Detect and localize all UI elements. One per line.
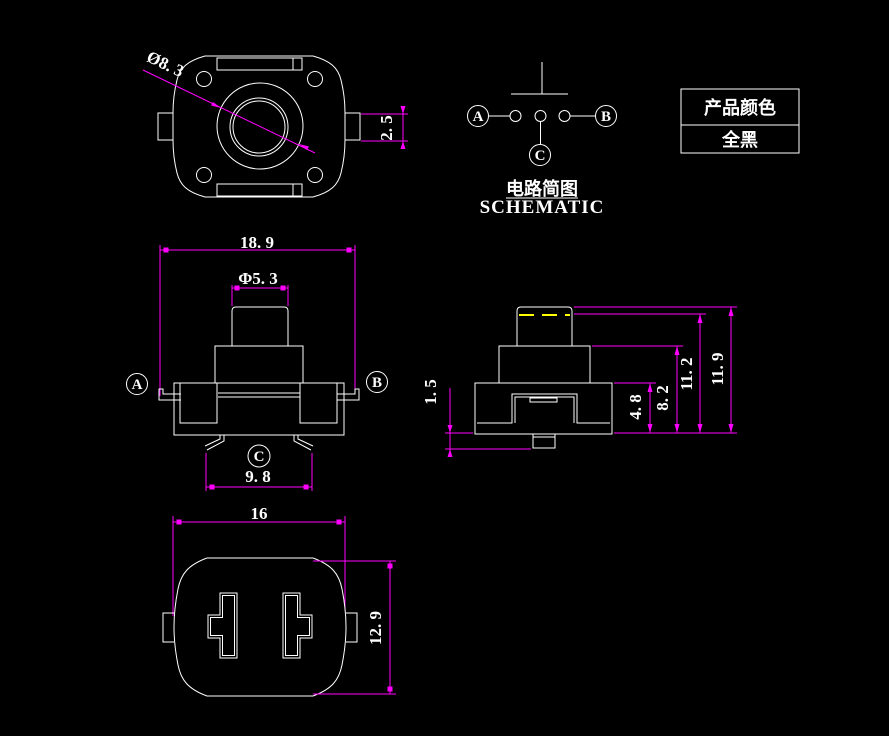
front-plunger xyxy=(232,307,288,346)
dim-arrow xyxy=(675,346,680,355)
side-groove-inner xyxy=(515,397,574,423)
front-mid-block xyxy=(215,346,303,383)
front-body xyxy=(174,383,344,435)
dim-square xyxy=(164,248,169,253)
dim-square xyxy=(281,286,286,291)
top-view-button-inner xyxy=(233,101,285,153)
schematic-title-en: SCHEMATIC xyxy=(480,197,605,218)
bottom-view-body-outline xyxy=(174,558,346,696)
dim-square xyxy=(388,564,393,569)
cad-drawing-canvas: Ø8. 3 2. 5 A B C 电路简图 SCHEMATIC 产品颜色 全黑 xyxy=(0,0,889,736)
side-body xyxy=(475,383,612,434)
balloon-c-label: C xyxy=(254,449,265,465)
front-view: 18. 9 Φ5. 3 A B C 9. 8 xyxy=(127,233,388,491)
top-view-corner-hole xyxy=(197,168,212,183)
front-left-foot xyxy=(205,435,224,450)
dim-tab-label: 2. 5 xyxy=(377,115,396,141)
top-view-button-outer xyxy=(230,98,288,156)
dim-total-width-label: 18. 9 xyxy=(240,233,274,252)
dim-arrow xyxy=(648,424,653,433)
side-contact-bar xyxy=(530,398,557,402)
schematic-label-a: A xyxy=(473,109,484,125)
bottom-left-slot-inner xyxy=(211,596,235,656)
bottom-right-slot-inner xyxy=(286,596,310,656)
side-view: 1. 5 4. 8 8. 2 11. 2 11. 9 xyxy=(421,307,737,457)
top-view: Ø8. 3 2. 5 xyxy=(143,47,408,197)
front-left-terminal xyxy=(159,389,181,400)
dim-arrow xyxy=(401,106,406,114)
dim-square xyxy=(388,687,393,692)
contact-dot xyxy=(559,111,570,122)
dim-arrow xyxy=(211,102,221,108)
dim-arrow xyxy=(698,424,703,433)
dim-button-diameter-label: Φ5. 3 xyxy=(238,269,278,288)
dim-base-height-label: 4. 8 xyxy=(626,394,645,420)
dim-arrow xyxy=(299,144,309,150)
side-mid-block xyxy=(499,346,590,383)
dim-mid-height-label: 8. 2 xyxy=(653,385,672,411)
dim-arrow xyxy=(698,314,703,323)
top-view-corner-hole xyxy=(308,168,323,183)
front-body-right-recess xyxy=(300,383,337,423)
schematic: A B C 电路简图 SCHEMATIC xyxy=(468,62,617,218)
dim-pin-length-label: 1. 5 xyxy=(421,379,440,405)
dim-arrow xyxy=(729,424,734,433)
dim-arrow xyxy=(648,383,653,392)
top-view-corner-hole xyxy=(197,72,212,87)
dim-arrow xyxy=(448,449,453,457)
dim-arrow xyxy=(729,307,734,316)
contact-dot xyxy=(535,111,546,122)
schematic-title-cn: 电路简图 xyxy=(506,178,578,199)
top-view-top-slot xyxy=(217,58,302,70)
color-table-header: 产品颜色 xyxy=(704,97,776,118)
color-table: 产品颜色 全黑 xyxy=(681,89,799,153)
front-right-terminal xyxy=(337,389,359,400)
front-body-left-recess xyxy=(180,383,217,423)
cad-drawing: Ø8. 3 2. 5 A B C 电路简图 SCHEMATIC 产品颜色 全黑 xyxy=(0,0,889,736)
diameter-dim-line xyxy=(143,70,315,153)
front-right-foot xyxy=(294,435,313,450)
dim-square xyxy=(177,520,182,525)
top-view-corner-hole xyxy=(308,72,323,87)
dim-square xyxy=(347,248,352,253)
schematic-label-c: C xyxy=(535,148,546,164)
top-view-left-tab xyxy=(158,113,173,140)
side-plunger xyxy=(517,307,572,346)
dim-diameter-label: Ø8. 3 xyxy=(144,47,187,81)
top-view-bottom-slot xyxy=(217,184,302,196)
dim-arrow xyxy=(675,424,680,433)
dim-pressed-height-label: 11. 2 xyxy=(677,357,696,390)
dim-arrow xyxy=(448,425,453,433)
contact-dot xyxy=(510,111,521,122)
dim-square xyxy=(337,520,342,525)
dim-square xyxy=(210,485,215,490)
side-bottom-pin xyxy=(533,434,555,448)
bottom-view: 16 12. 9 xyxy=(163,504,396,696)
color-table-value: 全黑 xyxy=(721,129,758,150)
dim-bottom-height-label: 12. 9 xyxy=(366,611,385,645)
balloon-a-label: A xyxy=(132,377,143,393)
balloon-b-label: B xyxy=(372,375,382,391)
dim-bottom-width-label: 16 xyxy=(251,504,268,523)
bottom-view-left-tab xyxy=(163,613,174,642)
dim-square xyxy=(304,485,309,490)
bottom-view-right-tab xyxy=(346,613,357,642)
dim-arrow xyxy=(401,141,406,149)
top-view-right-tab xyxy=(345,113,360,140)
schematic-label-b: B xyxy=(601,109,611,125)
dim-total-height-label: 11. 9 xyxy=(708,352,727,385)
dim-pin-span-label: 9. 8 xyxy=(245,467,271,486)
